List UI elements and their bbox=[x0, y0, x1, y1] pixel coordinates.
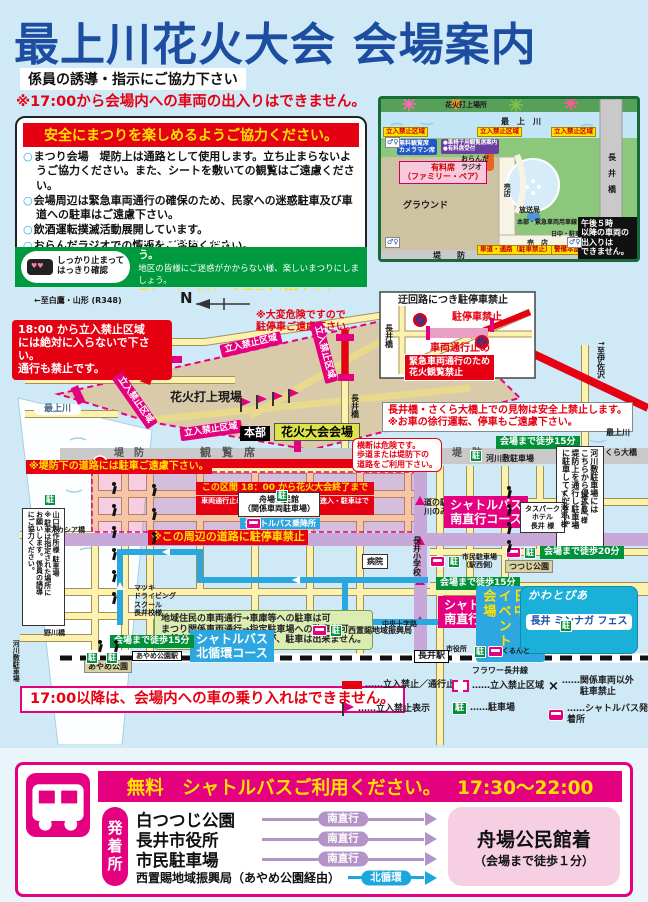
map-label: つつじ公園 bbox=[505, 560, 553, 573]
bus-stop-icon bbox=[246, 518, 261, 529]
route-origin: 西置賜地域振興局（あやめ公園経由） bbox=[136, 869, 340, 886]
minimap-label: 堤 防 bbox=[433, 251, 465, 260]
legend-item: ……立入禁止／通行止 bbox=[342, 680, 455, 691]
legend-item: ……立入禁止表示 bbox=[342, 702, 430, 716]
pedestrian-icon bbox=[505, 522, 513, 535]
minimap-label: 午後５時 以降の車両の 出入りは できません。 bbox=[578, 217, 640, 259]
minimap-label: おらんだ ラジオ bbox=[461, 155, 489, 172]
shuttle-header-text: 無料 シャトルバスご利用ください。 bbox=[127, 774, 442, 800]
map-label: タスパーク ホテル 長井 様 bbox=[520, 502, 565, 533]
pedestrian-icon bbox=[150, 508, 158, 521]
no-entry-flag-icon bbox=[288, 389, 300, 403]
map-label: 花火大会会場 bbox=[274, 423, 360, 441]
minimap-label: 立入禁止区域 bbox=[551, 127, 596, 137]
shuttle-route: 白つつじ公園南直行 bbox=[136, 809, 440, 829]
pedestrian-icon bbox=[505, 540, 513, 553]
departure-points-label: 発着所 bbox=[102, 807, 128, 886]
minimap-label: 本部・緊急車両用車線 bbox=[517, 219, 577, 226]
pedestrian-icon bbox=[110, 482, 118, 495]
traffic-safety-mascot: しっかり止まって はっきり確認 bbox=[21, 251, 130, 283]
subtitle: 係員の誘導・指示にご協力下さい bbox=[20, 68, 246, 90]
route-type-badge: 南直行 bbox=[318, 852, 368, 867]
map-label: ←至白鷹・山形 (R348) bbox=[34, 296, 122, 305]
pedestrian-icon bbox=[505, 486, 513, 499]
route-origin: 市民駐車場 bbox=[136, 847, 258, 871]
map-label: ↑至伊佐沢 bbox=[596, 340, 605, 379]
map-label: 長井橋 bbox=[384, 324, 393, 348]
legend-label: ……関係車両以外 駐車禁止 bbox=[562, 676, 634, 697]
map-label: 西置賜地域振興局 bbox=[348, 626, 412, 635]
restroom-icon: ♂♀ bbox=[567, 237, 582, 248]
shuttle-body: 発着所 白つつじ公園南直行長井市役所南直行市民駐車場南直行西置賜地域振興局（あや… bbox=[102, 807, 620, 886]
map-label: N bbox=[180, 290, 193, 308]
shuttle-routes: 白つつじ公園南直行長井市役所南直行市民駐車場南直行西置賜地域振興局（あやめ公園経… bbox=[136, 807, 440, 886]
map-label: 野川橋 bbox=[44, 629, 65, 637]
minimap-label: 立入禁止区域 bbox=[383, 127, 428, 137]
map-label: 堤 防 bbox=[114, 448, 144, 460]
dashbox-icon bbox=[452, 680, 469, 692]
main-access-map: ←至白鷹・山形 (R348)N※大変危険ですので 駐停車ご遠慮下さい。18:00… bbox=[0, 290, 648, 745]
minimap-labels: 花火打上場所最 上 川立入禁止区域立入禁止区域立入禁止区域無料観覧席 カメラマン… bbox=[381, 99, 637, 259]
parking-icon: 駐 bbox=[106, 652, 118, 664]
legend-label: ……立入禁止／通行止 bbox=[365, 680, 455, 691]
route-arrow: 南直行 bbox=[262, 818, 424, 821]
parking-icon: 駐 bbox=[330, 625, 342, 637]
safety-header: 安全にまつりを楽しめるようご協力ください。 bbox=[23, 123, 359, 147]
shuttle-header: 無料 シャトルバスご利用ください。 17:30～22:00 bbox=[98, 771, 622, 802]
shuttle-route: 市民駐車場南直行 bbox=[136, 849, 440, 869]
map-label: 長井小学校 bbox=[412, 536, 421, 576]
safety-item: 会場周辺は緊急車両通行の確保のため、民家への迷惑駐車及び車道への駐車はご遠慮下さ… bbox=[23, 194, 359, 223]
parking-icon: 駐 bbox=[524, 547, 536, 559]
route-type-badge: 南直行 bbox=[318, 832, 368, 847]
map-label: ※大変危険ですので 駐停車ご遠慮下さい。 bbox=[256, 310, 356, 334]
route-arrow: 南直行 bbox=[262, 858, 424, 861]
warning-text: ※17:00から会場内への車両の出入りはできません。 bbox=[16, 90, 366, 111]
map-label: シャトルバス 北循環コース bbox=[190, 630, 274, 662]
parking-icon: 駐 bbox=[452, 702, 467, 715]
no-entry-flag-icon bbox=[240, 398, 252, 412]
redbar-icon bbox=[342, 681, 362, 689]
legend-label: ……シャトルバス発着所 bbox=[567, 704, 648, 725]
legend-item: ×……関係車両以外 駐車禁止 bbox=[548, 676, 634, 697]
bus-stop-icon bbox=[312, 625, 327, 636]
pedestrian-icon bbox=[110, 504, 118, 517]
pedestrian-icon bbox=[150, 532, 158, 545]
safety-item: まつり会場 堤防上は通路として使用します。立ち止まらないようご協力ください。また… bbox=[23, 150, 359, 193]
shuttle-bus-panel: 無料 シャトルバスご利用ください。 17:30～22:00 発着所 白つつじ公園… bbox=[15, 762, 633, 897]
minimap-label: 放送局 bbox=[519, 206, 540, 214]
map-label: 長井橋 bbox=[350, 394, 359, 418]
manner-line: ゴミは必ず持ち帰り、町をきれいにしましょう。 bbox=[138, 232, 361, 262]
map-label: シャトルバス 南直行コース bbox=[444, 496, 528, 528]
legend-label: ……駐車場 bbox=[470, 703, 515, 714]
map-label: ※この周辺の道路に駐停車禁止 bbox=[148, 530, 308, 545]
parking-icon: 駐 bbox=[86, 652, 98, 664]
map-label: 駐停車禁止 bbox=[452, 312, 502, 324]
map-label: マツキ ドライビング スクール 長井校様 bbox=[134, 584, 176, 617]
pedestrian-icon bbox=[110, 570, 118, 583]
parking-icon: 駐 bbox=[560, 620, 572, 632]
destination-note: （会場まで徒歩１分） bbox=[474, 852, 594, 869]
pedestrian-icon bbox=[110, 548, 118, 561]
map-label: くるんと bbox=[502, 647, 530, 655]
pedestrian-icon bbox=[112, 640, 120, 653]
pedestrian-icon bbox=[505, 504, 513, 517]
page-title: 最上川花火大会 会場案内 bbox=[14, 8, 640, 73]
shuttle-route: 西置賜地域振興局（あやめ公園経由）北循環 bbox=[136, 869, 440, 886]
minimap-label: ●車椅子用観覧席案内 ●有料席受付 bbox=[441, 139, 499, 154]
shuttle-bus-icon bbox=[26, 773, 90, 837]
pedestrian-icon bbox=[110, 592, 118, 605]
map-label: 福祉屋 様 bbox=[580, 493, 588, 523]
shuttle-hours: 17:30～22:00 bbox=[457, 774, 593, 800]
route-arrow: 北循環 bbox=[348, 876, 424, 879]
destination-name: 舟場公民館着 bbox=[477, 825, 591, 852]
legend-item: 駐……駐車場 bbox=[452, 702, 515, 715]
pedestrian-icon bbox=[110, 526, 118, 539]
map-label: ※堤防下の道路には駐車ご遠慮下さい。 bbox=[26, 460, 212, 474]
map-label: 横断は危険です。 歩道または堤防下の 道路をご利用下さい。 bbox=[352, 438, 442, 472]
pedestrian-icon bbox=[96, 640, 104, 653]
route-type-badge: 南直行 bbox=[318, 812, 368, 827]
map-label: 迂回路につき駐停車禁止 bbox=[398, 295, 508, 307]
mascot-car-icon bbox=[27, 259, 53, 275]
legend-label: ……立入禁止表示 bbox=[358, 704, 430, 715]
legend-item: ……シャトルバス発着所 bbox=[548, 704, 648, 725]
map-label: 市民駐車場 （駅西側） bbox=[462, 553, 497, 570]
restroom-icon: ♂♀ bbox=[385, 237, 400, 248]
bus-icon bbox=[548, 709, 564, 721]
map-label: すし海道 様 bbox=[560, 490, 568, 527]
parking-icon: 駐 bbox=[276, 490, 288, 502]
map-label: 最上川 bbox=[606, 428, 630, 437]
map-label: 長井駅 bbox=[414, 650, 449, 663]
map-label: あやめ公園駅 bbox=[132, 651, 182, 661]
map-label: 花火打上現場 bbox=[170, 390, 242, 404]
route-arrow: 南直行 bbox=[262, 838, 424, 841]
shuttle-destination: 舟場公民館着 （会場まで徒歩１分） bbox=[448, 807, 620, 886]
map-label: 会場まで徒歩15分 bbox=[110, 635, 194, 648]
map-label: 緊急車両通行のため 花火観覧禁止 bbox=[404, 354, 495, 381]
parking-icon: 駐 bbox=[470, 450, 482, 462]
parking-icon: 駐 bbox=[44, 494, 56, 506]
manner-box: しっかり止まって はっきり確認 ゴミは必ず持ち帰り、町をきれいにしましょう。地区… bbox=[15, 247, 367, 287]
xmark-icon: × bbox=[548, 679, 559, 694]
shuttle-route: 長井市役所南直行 bbox=[136, 829, 440, 849]
manner-line: 地区の皆様にご迷惑がかからない様、楽しいまつりにしましょう。 bbox=[138, 262, 361, 286]
map-label: 長井 ミンナガ フェス bbox=[526, 614, 632, 630]
bus-stop-icon bbox=[430, 556, 445, 567]
minimap-label: 車道・通路（駐車禁止） bbox=[477, 245, 555, 255]
minimap-label: 長 井 橋 bbox=[607, 153, 616, 193]
parking-icon: 駐 bbox=[474, 646, 486, 658]
venue-detail-minimap: 花火打上場所最 上 川立入禁止区域立入禁止区域立入禁止区域無料観覧席 カメラマン… bbox=[378, 96, 640, 262]
map-label: 河川敷駐車場 bbox=[486, 454, 534, 463]
map-label: 市役所 bbox=[446, 645, 467, 653]
map-label: フラワー長井線 bbox=[472, 666, 528, 675]
map-label: 本部 bbox=[240, 426, 270, 441]
map-label: 18:00 から立入禁止区域 には絶対に入らないで下さい。 通行も禁止です。 bbox=[12, 320, 172, 380]
bus-stop-icon bbox=[488, 646, 503, 657]
minimap-label: 花火打上場所 bbox=[445, 101, 487, 109]
minimap-label: 立入禁止区域 bbox=[477, 127, 522, 137]
route-type-badge: 北循環 bbox=[361, 870, 411, 885]
legend-label: ……立入禁止区域 bbox=[472, 681, 544, 692]
restroom-icon: ♂♀ bbox=[385, 137, 400, 148]
map-label: かわとぴあ bbox=[528, 590, 588, 603]
no-entry-flag-icon bbox=[256, 395, 268, 409]
map-label: 会場まで徒歩20分 bbox=[540, 546, 624, 559]
map-label: 観 覧 席 bbox=[200, 447, 255, 460]
minimap-label: 売店 bbox=[503, 183, 511, 197]
parking-icon: 駐 bbox=[448, 556, 460, 568]
map-label: 長井橋・さくら大橋上での見物は安全上禁止します。 ※お車の徐行運転、停車もご遠慮… bbox=[382, 402, 633, 432]
map-label: 立入禁止区域 bbox=[219, 331, 282, 357]
minimap-label: 最 上 川 bbox=[501, 117, 541, 126]
map-label: 最上川 bbox=[34, 404, 81, 415]
map-label: 河川敷駐車場 bbox=[12, 640, 20, 682]
map-label: 立入禁止区域 bbox=[179, 420, 242, 441]
legend-item: ……立入禁止区域 bbox=[452, 680, 544, 692]
map-label: 病院 bbox=[362, 554, 388, 569]
flag-icon bbox=[342, 702, 355, 716]
festival-venue-poster: 最上川花火大会 会場案内 係員の誘導・指示にご協力下さい ※17:00から会場内… bbox=[0, 0, 648, 902]
map-label: アカシア橋 bbox=[50, 526, 85, 534]
minimap-label: グラウンド bbox=[403, 201, 448, 212]
map-labels: ←至白鷹・山形 (R348)N※大変危険ですので 駐停車ご遠慮下さい。18:00… bbox=[0, 290, 648, 745]
no-entry-flag-icon bbox=[272, 392, 284, 406]
mascot-text: しっかり止まって はっきり確認 bbox=[57, 257, 124, 277]
pedestrian-icon bbox=[150, 484, 158, 497]
minimap-label: 無料観覧席 カメラマン席 bbox=[397, 139, 437, 155]
